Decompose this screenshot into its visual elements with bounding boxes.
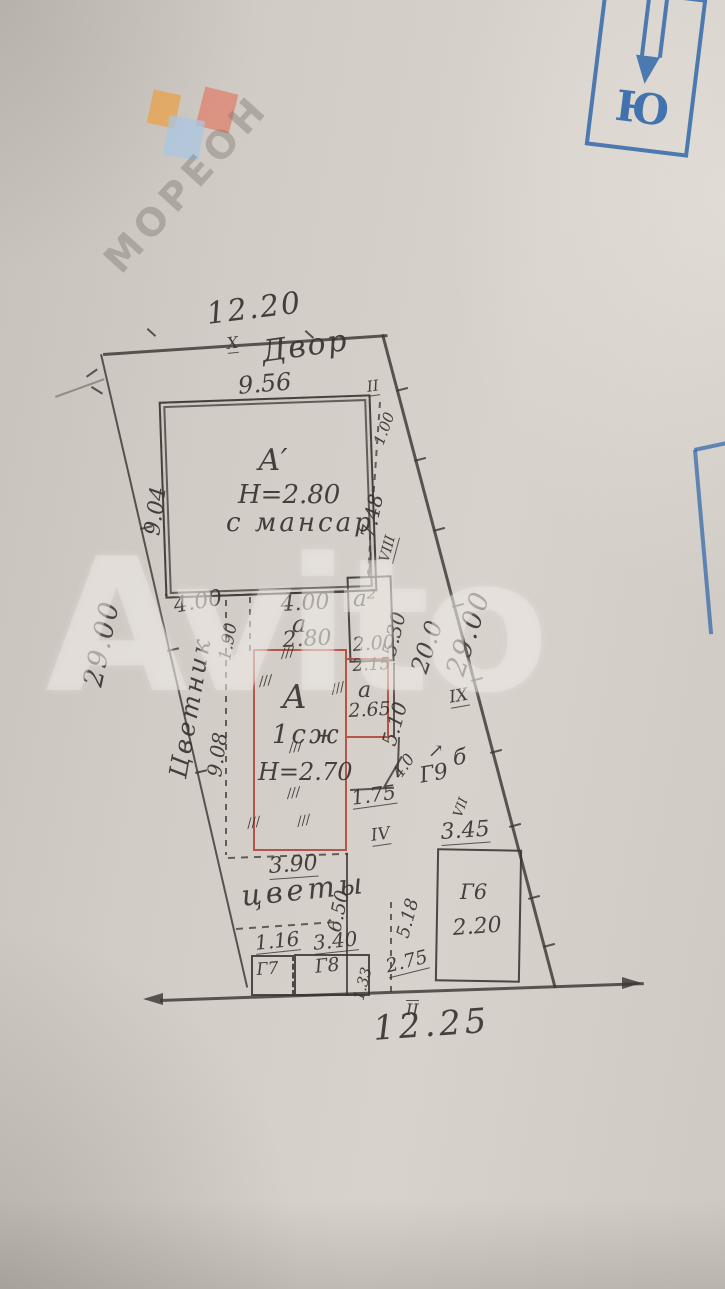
shed-g9-label: Г9 xyxy=(418,761,450,788)
shed-g6-label: Г6 xyxy=(460,882,487,903)
hatch-mark: /// xyxy=(246,815,262,830)
dim-3-40: 3.40 xyxy=(312,928,359,955)
dim-9-08: 9.08 xyxy=(204,731,230,778)
hatch-mark: /// xyxy=(286,786,301,801)
baseline-arrow-left xyxy=(143,993,163,1005)
moreon-watermark: МОРЕОН xyxy=(70,60,350,350)
scanned-site-plan: 12.20 Двор Х 9.56 II А′ Н=2.80 с мансар … xyxy=(0,0,725,1289)
shed-b-label: б xyxy=(452,747,467,770)
dashed-line-vertical xyxy=(390,902,392,994)
dim-1-16: 1.16 xyxy=(254,928,301,955)
south-direction-stamp: Ю xyxy=(585,0,708,158)
dim-house-top: 9.56 xyxy=(237,369,292,398)
house-a1-label: А′ xyxy=(258,446,288,476)
dim-5-18: 5.18 xyxy=(395,897,423,940)
dim-1-00: 1.00 xyxy=(372,410,398,447)
point-marker-iv: IV xyxy=(370,825,391,846)
baseline-arrow-right xyxy=(622,977,642,989)
compass-arrowhead-icon xyxy=(633,55,660,86)
south-letter: Ю xyxy=(613,81,673,136)
hatch-mark: /// xyxy=(296,813,312,828)
hatch-mark: /// xyxy=(288,740,303,755)
moreon-watermark-text: МОРЕОН xyxy=(95,86,278,282)
baseline-dimension-line xyxy=(160,982,644,1001)
arrow-mark-vi: ↗ xyxy=(428,742,444,761)
shed-g7-label: Г7 xyxy=(256,960,279,978)
house-a1-height: Н=2.80 xyxy=(238,482,340,508)
avito-watermark-text: Avito xyxy=(45,518,541,734)
dim-3-45: 3.45 xyxy=(440,819,491,846)
dim-bottom-width: 12.25 xyxy=(372,1004,491,1046)
point-marker-vii: VII xyxy=(452,796,471,819)
tick-mark xyxy=(91,386,103,395)
tick-mark xyxy=(86,369,98,378)
stamp-fragment-line xyxy=(694,441,725,451)
dim-1-75: 1.75 xyxy=(350,782,397,810)
shed-g6-dim: 2.20 xyxy=(452,915,502,940)
tick-mark xyxy=(55,378,104,397)
shed-g8-label: Г8 xyxy=(314,955,341,976)
compass-shaft xyxy=(640,0,669,58)
point-marker-ii-top: II xyxy=(366,378,380,396)
dim-4-0: 4.0 xyxy=(390,751,418,781)
stamp-fragment-line xyxy=(693,450,713,635)
main-house-height: Н=2.70 xyxy=(258,760,352,784)
